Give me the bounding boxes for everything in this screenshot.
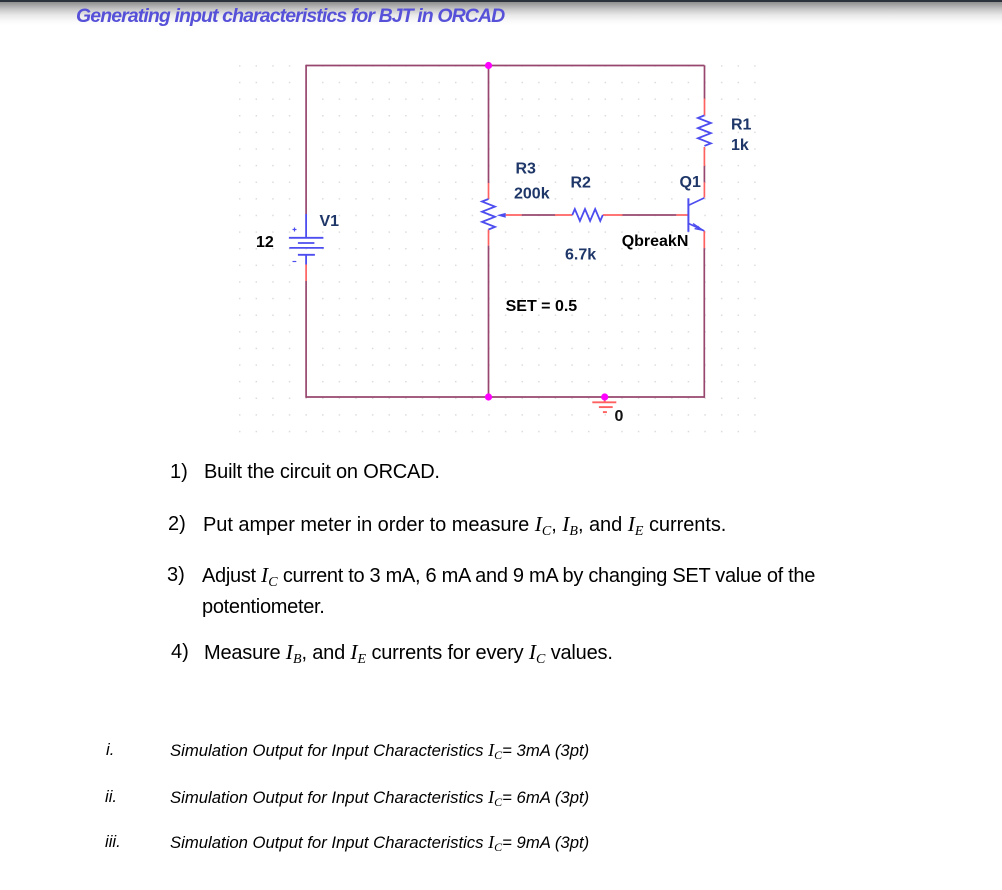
svg-text:V1: V1 — [320, 213, 340, 230]
svg-text:0: 0 — [615, 408, 624, 425]
svg-text:12: 12 — [256, 234, 274, 251]
svg-text:SET = 0.5: SET = 0.5 — [506, 298, 578, 315]
svg-text:Q1: Q1 — [680, 174, 701, 191]
svg-text:R1: R1 — [731, 117, 752, 134]
svg-text:6.7k: 6.7k — [565, 247, 596, 264]
svg-text:200k: 200k — [514, 186, 550, 203]
svg-text:R3: R3 — [516, 161, 537, 178]
svg-text:1k: 1k — [731, 137, 749, 154]
svg-text:QbreakN: QbreakN — [622, 233, 689, 250]
svg-text:R2: R2 — [571, 175, 592, 192]
